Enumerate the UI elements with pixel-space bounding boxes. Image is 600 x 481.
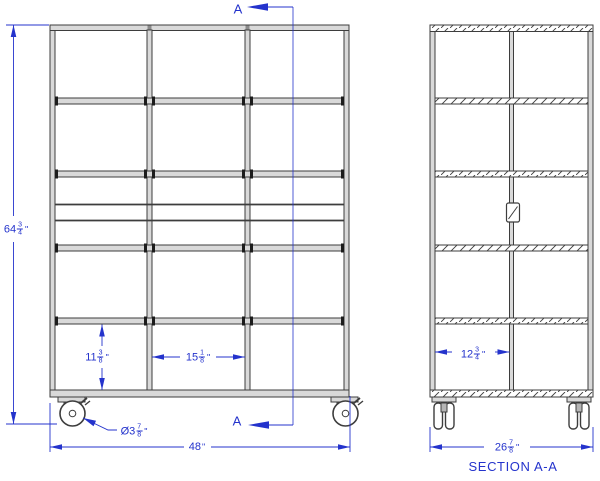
section-arrow-bottom-icon (248, 421, 269, 429)
dim-shelf-opening-height: 1138" (83, 350, 111, 365)
front-right-wall (344, 25, 349, 397)
caster-hub (69, 410, 76, 417)
section-bottom-panel (430, 390, 593, 397)
front-view-drawing (50, 25, 363, 426)
front-left-caster (58, 397, 90, 426)
section-cut-label-top: A (234, 3, 243, 16)
front-shelves (55, 98, 344, 324)
front-divider-2 (245, 30, 250, 390)
dim-caster-leader (82, 415, 117, 430)
caster-hub (342, 410, 349, 417)
dim-overall-depth: 2678" (493, 440, 521, 455)
section-view-drawing (430, 25, 593, 429)
front-divider-1 (147, 30, 152, 390)
section-left-caster (432, 397, 456, 429)
dim-overall-height: 6434" (2, 222, 30, 237)
section-right-wall (588, 25, 593, 397)
middle-cross-rail (55, 205, 344, 221)
front-bottom-panel (50, 390, 349, 397)
technical-drawing-page: A A 6434" 1138" 1518" Ø378" 48" 1234" 26… (0, 0, 600, 481)
divider-tenon (148, 26, 152, 30)
dim-caster-diameter: Ø378" (119, 424, 150, 439)
front-right-caster (331, 397, 363, 426)
section-mid-rail-cut (507, 203, 520, 222)
front-top-panel (50, 25, 349, 31)
drawing-linework (0, 0, 600, 481)
front-left-wall (50, 25, 55, 397)
section-arrow-top-icon (247, 3, 268, 11)
section-top-panel (430, 25, 593, 32)
section-view-title: SECTION A-A (469, 460, 558, 474)
section-cut-label-bottom: A (233, 415, 242, 428)
dimension-linework (6, 3, 593, 452)
dim-section-opening-width: 1234" (459, 347, 487, 362)
divider-tenon (246, 26, 250, 30)
section-cut-line (247, 3, 293, 429)
section-right-caster (567, 397, 591, 429)
shelf-end-clips (55, 97, 344, 326)
dim-overall-width: 48" (187, 441, 207, 453)
section-left-wall (430, 25, 435, 397)
dim-bay-opening-width: 1518" (184, 350, 212, 365)
